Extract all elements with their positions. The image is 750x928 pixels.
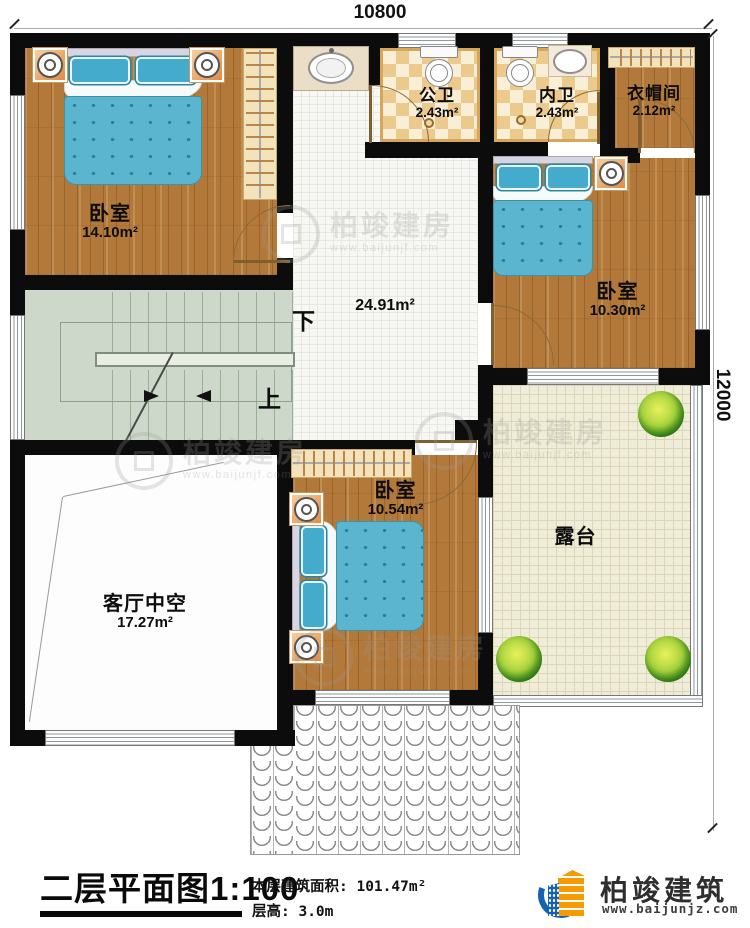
bed-duvet — [493, 200, 593, 276]
clothes-rack-hangers — [612, 49, 691, 66]
room-label-bedroom3: 卧室 10.54m² — [338, 480, 453, 519]
room-label-public-bath: 公卫 2.43m² — [393, 86, 481, 120]
room-area: 2.12m² — [608, 103, 700, 118]
bed-pillow — [136, 57, 196, 84]
door-arc-curve — [494, 305, 554, 365]
tree-icon — [638, 391, 684, 437]
room-label-bedroom1: 卧室 14.10m² — [55, 203, 165, 242]
room-area: 24.91m² — [325, 297, 445, 315]
bed-headboard — [292, 521, 300, 631]
brand-building-orange — [558, 870, 584, 916]
room-label-hall: 24.91m² — [325, 297, 445, 315]
wardrobe-hangers — [295, 451, 408, 476]
stairs-down-label: 下 — [292, 302, 315, 336]
stair-handrail — [95, 352, 295, 367]
window — [45, 730, 235, 746]
title-stats: 本层建筑面积: 101.47m² 层高: 3.0m — [252, 875, 426, 924]
lamp-icon — [301, 642, 312, 653]
room-area: 10.54m² — [338, 502, 453, 519]
brand-building-blue — [548, 883, 559, 916]
drawing-title-text: 二层平面图 — [40, 870, 210, 907]
room-area: 2.43m² — [513, 105, 601, 120]
lamp-icon — [606, 168, 617, 179]
dimension-top: 10800 — [335, 2, 425, 24]
sink-icon — [553, 49, 587, 74]
bed-headboard — [64, 48, 202, 57]
window — [478, 497, 493, 633]
stair-direction-arrow — [196, 390, 211, 402]
window — [10, 95, 25, 230]
door-arc — [233, 205, 290, 262]
wardrobe-hangers — [246, 52, 274, 196]
bed-pillow — [497, 165, 541, 190]
bed-duvet — [64, 96, 202, 185]
stairs-up-label: 上 — [258, 380, 281, 414]
window — [315, 690, 450, 705]
room-label-cloakroom: 衣帽间 2.12m² — [608, 84, 700, 118]
toilet-tank — [420, 46, 458, 58]
room-label-inner-bath: 内卫 2.43m² — [513, 86, 601, 120]
dimension-line-right — [713, 36, 714, 831]
bed-pillow — [301, 526, 326, 576]
room-area: 14.10m² — [55, 225, 165, 242]
room-name: 客厅中空 — [80, 593, 210, 615]
brand-logo-icon — [538, 868, 596, 920]
room-name: 卧室 — [55, 203, 165, 225]
brand-website: www.baijunjz.com — [602, 901, 738, 916]
lamp-icon — [301, 504, 312, 515]
room-name: 卧室 — [338, 480, 453, 502]
floor-height-value: 3.0m — [298, 904, 333, 920]
window — [10, 315, 25, 440]
toilet-tank — [502, 46, 538, 58]
bed-pillow — [546, 165, 590, 190]
floor-area-line: 本层建筑面积: 101.47m² — [252, 875, 426, 900]
lamp-icon — [44, 59, 56, 71]
bed-headboard — [493, 156, 593, 164]
room-name: 内卫 — [513, 86, 601, 105]
terrace-right-railing — [690, 385, 703, 707]
wall — [455, 420, 493, 440]
room-area: 17.27m² — [80, 615, 210, 632]
window — [695, 195, 710, 330]
wall — [10, 275, 293, 290]
room-label-living-void: 客厅中空 17.27m² — [80, 593, 210, 632]
toilet-seat — [511, 64, 529, 82]
title-underline — [40, 911, 242, 917]
window — [527, 368, 659, 385]
room-label-terrace: 露台 — [528, 526, 623, 548]
room-area: 2.43m² — [393, 105, 481, 120]
stair-direction-arrow — [144, 390, 159, 402]
bed-pillow — [70, 57, 130, 84]
dimension-right: 12000 — [711, 350, 733, 440]
door-arc — [494, 305, 554, 365]
room-label-bedroom2: 卧室 10.30m² — [560, 281, 675, 320]
room-name: 露台 — [528, 526, 623, 548]
tree-icon — [496, 636, 542, 682]
room-area: 10.30m² — [560, 303, 675, 320]
wall — [478, 148, 493, 303]
bed-pillow — [301, 581, 326, 629]
floor-area-label: 本层建筑面积: — [252, 879, 348, 895]
wall — [478, 633, 493, 690]
lamp-icon — [201, 59, 213, 71]
tree-icon — [645, 636, 691, 682]
wall — [277, 33, 293, 213]
wall — [480, 33, 494, 148]
terrace-bottom-railing — [493, 695, 703, 707]
room-name: 衣帽间 — [608, 84, 700, 103]
floor-area-value: 101.47m² — [356, 879, 426, 895]
floor-height-label: 层高: — [252, 904, 290, 920]
room-name: 公卫 — [393, 86, 481, 105]
toilet-seat — [430, 64, 448, 82]
bed-duvet — [336, 521, 424, 631]
room-name: 卧室 — [560, 281, 675, 303]
sink-basin — [316, 58, 346, 78]
roof-tiles — [250, 745, 295, 855]
faucet-icon — [329, 48, 334, 53]
dimension-line-top — [14, 28, 712, 29]
roof-tiles — [293, 705, 520, 855]
floor-plan-page: { "dimensions": { "top": "10800", "right… — [0, 0, 750, 928]
door-arc-curve — [233, 205, 290, 262]
wall — [478, 440, 493, 497]
floor-height-line: 层高: 3.0m — [252, 900, 426, 925]
